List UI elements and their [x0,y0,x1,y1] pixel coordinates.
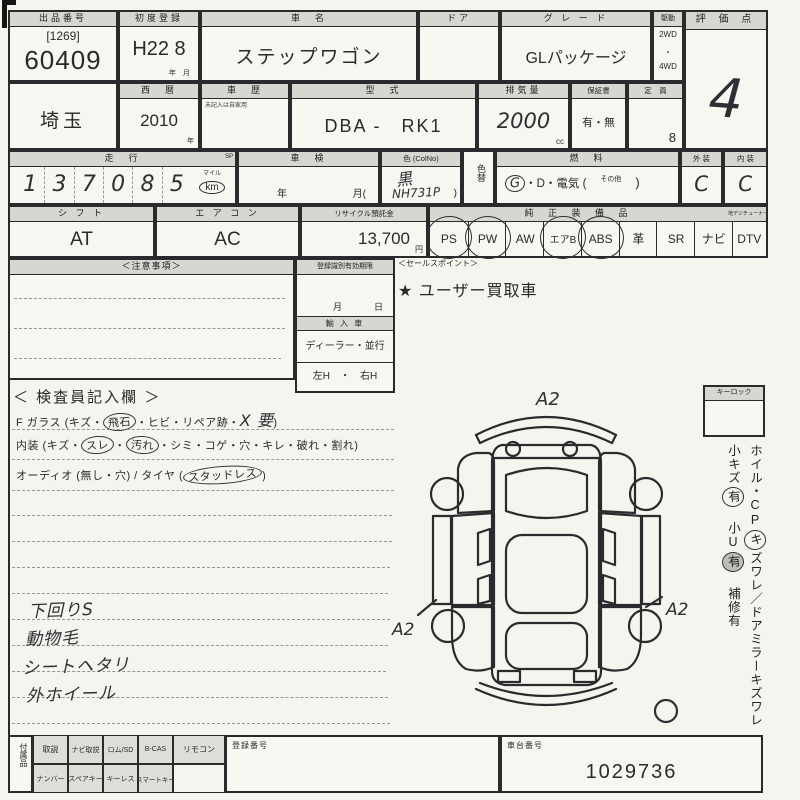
exterior-grade-header: 外 装 [682,152,721,167]
equip-dtv: DTV [732,221,766,256]
fuel-gas-circled: G [504,174,525,192]
grade-header: グ レ ー ド [502,12,650,27]
sales-point-header: ＜セールスポイント＞ [398,258,698,269]
reg-limit-day: 日 [374,300,383,313]
prefecture-value: 埼玉 [10,106,116,133]
notes-line [14,298,285,299]
displacement-header: 排気量 [479,84,568,99]
inspection-line [12,541,392,542]
displacement-unit: cc [479,137,568,146]
interior-condition-line: 内装 (キズ・スレ・汚れ・シミ・コゲ・穴・キレ・破れ・割れ) [16,436,358,454]
color-change-label: 色替 [475,164,488,182]
hand-note-underbody: 下回りS [28,595,95,622]
interior-grade-header: 内 装 [725,152,766,167]
grade-value: GLパッケージ [502,44,650,68]
score-header: 評 価 点 [686,12,766,30]
spare-tire-mark [655,700,677,722]
equip-navi: ナビ [694,221,733,256]
registration-number-cell: 登録番号 [225,735,500,793]
year-header: 西 暦 [120,84,198,99]
color-code: NH731P [392,185,441,202]
lot-number-cell: 出品番号 [1269] 60409 [8,10,118,82]
chassis-number-label: 車台番号 [507,740,543,751]
interior-grade-value: C [724,170,767,198]
import-header: 輸 入 車 [297,317,393,331]
shift-cell: シ フ ト AT [8,205,155,258]
car-name-value: ステップワゴン [202,42,416,69]
recycle-fee-header: リサイクル預託金 [302,207,426,222]
keylock-box: キーロック [703,385,765,437]
capacity-header: 定 員 [629,84,682,99]
equipment-dtv-header: 地デジチューナー [728,207,766,222]
accessories-label: 付属品 [18,743,29,767]
inspection-line [12,723,390,724]
model-code-header: 型 式 [292,84,475,99]
shaken-month-mark: 月( [353,185,366,200]
right-door-panel [599,513,641,605]
left-rear-wheel [432,610,464,642]
chassis-number-value: 1029736 [502,761,761,784]
drive-cell: 駆動 2WD ・ 4WD [652,10,684,82]
reg-limit-month: 月 [333,300,342,313]
drive-2wd: 2WD [654,30,682,39]
glass-condition-line: F ガラス (キズ・飛石・ヒビ・リペア跡・X 要) [16,407,278,431]
registration-limit-box: 登録識別有効期限 月 日 輸 入 車 ディーラー・並行 左H ・ 右H [295,258,395,393]
first-registration-value: H22 8 [120,38,198,61]
lot-number-header: 出品番号 [10,12,116,27]
notes-line [14,358,281,359]
color-header: 色 (ColNo) [382,152,460,167]
plate-cell: ナンバー [33,764,68,793]
model-code-cell: 型 式 DBA - RK1 [290,82,477,150]
history-header: 車 歴 [202,84,288,99]
manual-cell: 取説 [33,735,68,764]
inspector-section-title: ＜ 検査員記入欄 ＞ [13,386,161,407]
score-value: 4 [684,64,768,132]
sales-point-value: ★ ユーザー買取車 [398,277,698,301]
smart-key-cell: スマートキー [138,764,173,793]
equip-sr: SR [656,221,695,256]
recycle-fee-unit: 円 [302,244,426,255]
mileage-digit: 3 [45,167,74,203]
first-registration-units: 年 月 [120,68,198,78]
bcas-cell: B-CAS [138,735,173,764]
hand-note-animal-hair: 動物毛 [25,623,80,650]
remote-blank-cell [173,764,225,793]
side-note-scratch: 小キズ有 小U有 補修有 [722,444,744,736]
shaken-cell: 車 検 年 月( [237,150,380,205]
drive-sep: ・ [654,47,682,58]
warranty-cell: 保証書 有・無 [570,82,627,150]
equip-pw: PW [468,221,507,256]
notes-box: ＜注意事項＞ [8,258,295,380]
color-cell: 色 (ColNo) 黒 NH731P ) [380,150,462,205]
mileage-digit: 1 [16,167,45,203]
shift-value: AT [10,229,153,251]
warranty-header: 保証書 [572,84,625,99]
spare-key-cell: スペアキー [68,764,103,793]
mileage-cell: 走 行 SP 1 3 7 0 8 5 マイル km [8,150,237,205]
left-damage-pointer [418,600,436,615]
car-name-cell: 車 名 ステップワゴン [200,10,418,82]
aircon-cell: エ ア コ ン AC [155,205,300,258]
equip-airbag: エアB [543,221,582,256]
cabin-opening [506,535,587,613]
prefecture-cell: 埼玉 [8,82,118,150]
left-door-panel [452,513,494,605]
circled-yes-scribbled: 有 [721,551,745,573]
auction-sheet: 出品番号 [1269] 60409 初度登録 H22 8 年 月 車 名 ステッ… [0,0,800,800]
circled-dirt: 汚れ [125,435,159,455]
first-registration-cell: 初度登録 H22 8 年 月 [118,10,200,82]
exterior-grade-cell: 外 装 C [680,150,723,205]
capacity-value: 8 [629,130,682,145]
drive-header: 駆動 [654,12,682,27]
equipment-cell: 純 正 装 備 品 地デジチューナー PS PW AW エアB ABS 革 SR… [428,205,768,258]
inspection-line [12,429,394,430]
hand-note-seat-wear: シートヘタリ [22,650,131,679]
left-front-fender [458,453,494,513]
right-taillight [574,671,596,682]
import-options: ディーラー・並行 [297,331,393,363]
drive-4wd: 4WD [654,62,682,71]
chassis-number-cell: 車台番号 1029736 [500,735,763,793]
left-taillight [498,671,520,682]
shaken-year-mark: 年 [277,185,287,200]
mileage-unit-top: マイル [192,168,232,177]
navi-manual-cell: ナビ取説 [68,735,103,764]
inspection-line [12,567,390,568]
glass-hand-mark: X 要 [240,411,274,430]
year-unit: 年 [120,136,198,146]
accessories-column: 付属品 [8,735,33,793]
fuel-header: 燃 料 [497,152,678,167]
notes-line [14,328,285,329]
mileage-digit: 8 [133,167,162,203]
damage-mark-left: A2 [391,620,414,640]
side-note-wheel: ホイル・CPキズワレ／ドアミラーキズワレ [744,444,766,736]
door-cell: ドア [418,10,500,82]
color-paren: ) [454,188,457,199]
lot-number: 60409 [10,45,116,76]
left-sill [433,516,451,604]
fuel-close: ) [635,175,639,190]
circled-yes: 有 [721,485,745,507]
warranty-value: 有・無 [572,114,625,130]
capacity-cell: 定 員 8 [627,82,684,150]
remote-cell: リモコン [173,735,225,764]
side-notes-vertical: ホイル・CPキズワレ／ドアミラーキズワレ 小キズ有 小U有 補修有 [704,444,766,736]
equip-aw: AW [505,221,544,256]
equip-leather: 革 [619,221,658,256]
rear-window [506,623,587,669]
year-cell: 西 暦 2010 年 [118,82,200,150]
fuel-options: ・D・電気 ( [525,178,586,190]
displacement-value: 2000 [479,109,568,133]
car-name-header: 車 名 [202,12,416,27]
history-note: 未記入は自家用 [205,100,247,109]
color-change-cell: 色替 [462,150,495,205]
registration-number-label: 登録番号 [232,740,268,751]
lot-bracket: [1269] [10,29,116,43]
sales-point-area: ＜セールスポイント＞ ★ ユーザー買取車 [398,258,698,378]
inspection-line [12,515,392,516]
right-rear-wheel [629,610,661,642]
keyless-cell: キーレス [103,764,138,793]
damage-mark-right: A2 [665,600,688,620]
shift-header: シ フ ト [10,207,153,222]
mileage-digit: 7 [75,167,104,203]
windshield [506,468,587,518]
notes-header: ＜注意事項＞ [10,260,293,275]
mileage-unit-km: km [199,181,224,194]
circled-ki: キ [743,529,767,551]
hand-note-aftermarket-wheel: 外ホイール [26,678,117,706]
interior-grade-cell: 内 装 C [723,150,768,205]
rom-sd-cell: ロム/SD [103,735,138,764]
mileage-sp-mark: SP [225,154,233,160]
grade-cell: グ レ ー ド GLパッケージ [500,10,652,82]
inspection-line [12,593,388,594]
car-body-outline [492,445,601,685]
model-code-value: DBA - RK1 [292,112,475,138]
recycle-fee-cell: リサイクル預託金 13,700 円 [300,205,428,258]
front-bumper-inner [480,427,612,443]
fuel-other: その他 [586,176,635,183]
history-cell: 車 歴 未記入は自家用 [200,82,290,150]
scan-corner-mark-2 [2,0,16,5]
first-registration-header: 初度登録 [120,12,198,27]
fuel-cell: 燃 料 G・D・電気 (その他) [495,150,680,205]
year-value: 2010 [120,111,198,131]
page-left-border [8,380,10,735]
mileage-digit: 5 [163,167,191,203]
car-damage-diagram: A2 A2 A2 [390,383,704,731]
circled-scuff: スレ [81,435,115,455]
right-sill [642,516,660,604]
handle-options: 左H ・ 右H [297,363,393,391]
inspection-line [12,459,394,460]
inspection-line [12,490,394,491]
keylock-header: キーロック [705,387,763,401]
right-front-fender [599,453,635,513]
mileage-header: 走 行 [10,152,235,167]
aircon-header: エ ア コ ン [157,207,298,222]
aircon-value: AC [157,229,298,251]
shaken-header: 車 検 [239,152,378,167]
equip-ps: PS [430,221,468,256]
door-header: ドア [420,12,498,27]
equip-abs: ABS [581,221,620,256]
audio-tire-line: オーディオ (無し・穴) / タイヤ (スタッドレス) [16,466,266,484]
circled-studless: スタッドレス [183,463,263,486]
displacement-cell: 排気量 2000 cc [477,82,570,150]
mileage-digit: 0 [104,167,133,203]
damage-mark-front: A2 [535,389,560,410]
score-cell: 評 価 点 4 [684,10,768,150]
exterior-grade-value: C [681,170,722,198]
